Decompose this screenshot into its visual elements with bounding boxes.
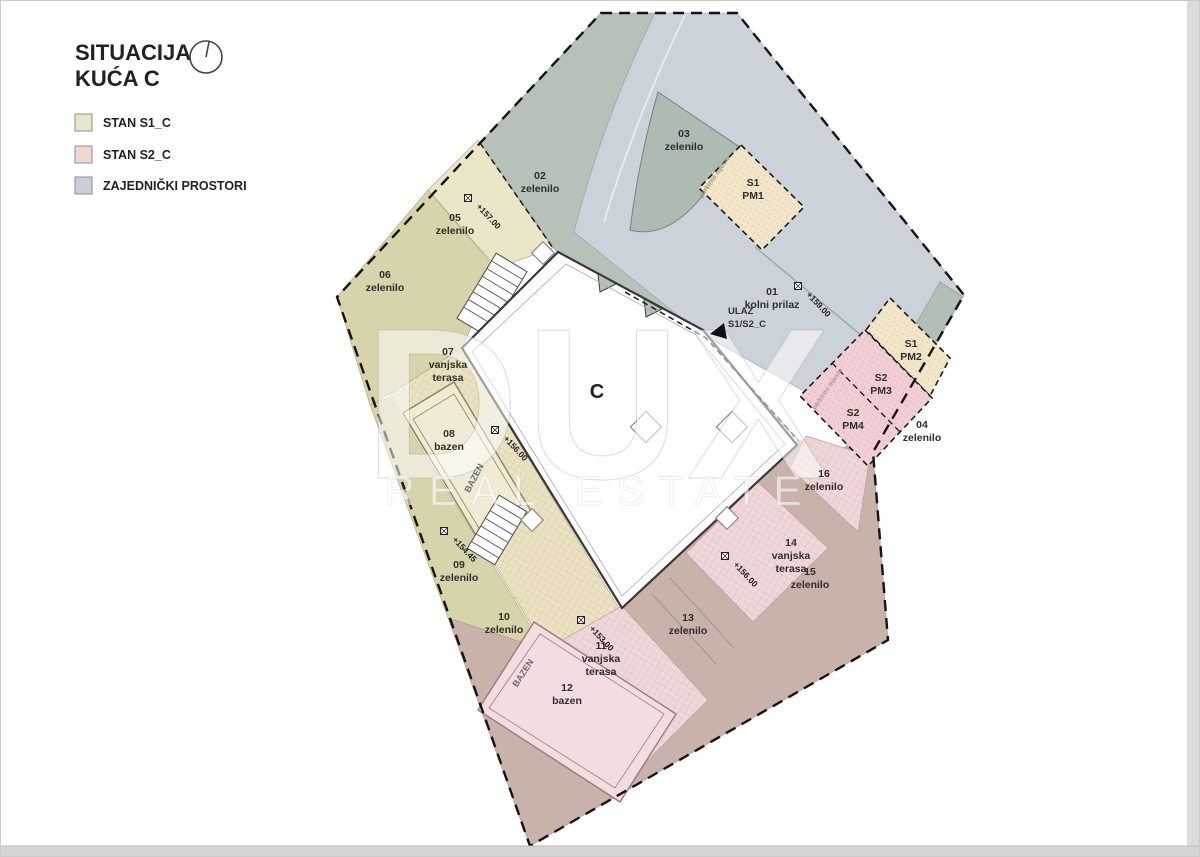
legend-swatch-common [75, 177, 92, 194]
svg-text:15: 15 [804, 566, 816, 578]
svg-text:S1: S1 [905, 338, 918, 350]
svg-text:KUĆA C: KUĆA C [75, 66, 160, 91]
legend-swatch-s1 [75, 114, 92, 131]
svg-text:PM1: PM1 [742, 190, 764, 202]
svg-text:zelenilo: zelenilo [665, 141, 704, 153]
svg-text:08: 08 [443, 428, 455, 440]
svg-text:13: 13 [682, 612, 694, 624]
legend-label-s2: STAN S2_C [103, 148, 171, 162]
svg-text:terasa: terasa [776, 563, 807, 575]
svg-text:zelenilo: zelenilo [440, 572, 479, 584]
svg-text:09: 09 [453, 559, 465, 571]
svg-text:S2: S2 [875, 372, 888, 384]
svg-text:SITUACIJA: SITUACIJA [75, 40, 191, 65]
svg-text:12: 12 [561, 682, 573, 694]
svg-text:PM3: PM3 [870, 385, 892, 397]
north-indicator-icon [190, 41, 222, 73]
svg-text:PM2: PM2 [900, 351, 922, 363]
building-c-label: C [590, 381, 604, 403]
svg-text:zelenilo: zelenilo [791, 579, 830, 591]
svg-text:S1/S2_C: S1/S2_C [728, 319, 766, 330]
svg-text:PM4: PM4 [842, 420, 864, 432]
svg-text:S2: S2 [847, 407, 860, 419]
svg-text:zelenilo: zelenilo [436, 225, 475, 237]
site-plan-drawing: DUX REAL ESTATE 01 kolni prilaz 02 zelen… [0, 0, 1200, 857]
svg-text:zelenilo: zelenilo [669, 625, 708, 637]
svg-text:bazen: bazen [552, 695, 582, 707]
svg-text:terasa: terasa [586, 666, 617, 678]
svg-text:14: 14 [785, 537, 797, 549]
svg-text:vanjska: vanjska [582, 653, 621, 665]
svg-text:vanjska: vanjska [429, 359, 468, 371]
svg-text:06: 06 [379, 269, 391, 281]
svg-text:02: 02 [534, 170, 546, 182]
right-edge-bar [1187, 0, 1200, 846]
watermark-realestate: REAL ESTATE [385, 467, 816, 514]
svg-text:zelenilo: zelenilo [805, 481, 844, 493]
svg-text:zelenilo: zelenilo [903, 432, 942, 444]
bottom-scrollbar[interactable] [0, 846, 1200, 857]
svg-text:01: 01 [766, 286, 778, 298]
legend-label-common: ZAJEDNIČKI PROSTORI [103, 178, 247, 193]
svg-text:zelenilo: zelenilo [485, 624, 524, 636]
legend-label-s1: STAN S1_C [103, 116, 171, 130]
svg-text:vanjska: vanjska [772, 550, 811, 562]
svg-text:16: 16 [818, 468, 830, 480]
svg-text:10: 10 [498, 611, 510, 623]
svg-text:zelenilo: zelenilo [521, 183, 560, 195]
svg-text:ULAZ: ULAZ [728, 306, 754, 317]
svg-text:04: 04 [916, 419, 928, 431]
svg-text:03: 03 [678, 128, 690, 140]
svg-text:bazen: bazen [434, 441, 464, 453]
legend-swatch-s2 [75, 146, 92, 163]
svg-text:S1: S1 [747, 177, 760, 189]
svg-text:05: 05 [449, 212, 461, 224]
svg-text:07: 07 [442, 346, 454, 358]
site-plan-page: DUX REAL ESTATE 01 kolni prilaz 02 zelen… [0, 0, 1200, 857]
svg-text:zelenilo: zelenilo [366, 282, 405, 294]
svg-text:terasa: terasa [433, 372, 464, 384]
